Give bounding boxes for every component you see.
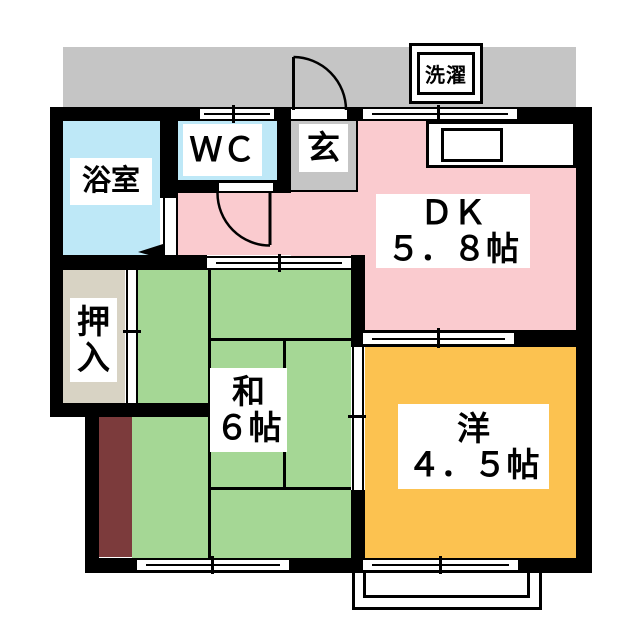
bath-label-text: 浴室 <box>82 166 140 197</box>
label-genkan: 玄 <box>299 124 348 172</box>
label-oshiire: 押 入 <box>70 298 117 382</box>
oshiire-char-2: 入 <box>77 340 110 376</box>
dk-size-text: ５．８帖 <box>387 231 519 267</box>
laundry-box: 洗濯 <box>409 43 483 104</box>
youshitsu-name-text: 洋 <box>457 411 490 447</box>
bath-door-triangle <box>138 244 163 259</box>
label-wc: ＷＣ <box>183 124 262 176</box>
youshitsu-size-text: ４．５帖 <box>408 447 540 483</box>
wc-door-arc <box>218 193 271 246</box>
wc-label-text: ＷＣ <box>190 132 256 168</box>
dk-name-text: ＤＫ <box>420 195 486 231</box>
genkan-label-text: 玄 <box>307 130 340 166</box>
label-washitsu: 和 ６帖 <box>210 368 287 452</box>
washitsu-name-text: 和 <box>232 374 265 410</box>
label-youshitsu: 洋 ４．５帖 <box>398 404 549 489</box>
entrance-door-arc <box>294 57 347 110</box>
washitsu-size-text: ６帖 <box>216 410 282 446</box>
label-dk: ＤＫ ５．８帖 <box>376 194 530 268</box>
label-bath: 浴室 <box>70 158 152 205</box>
floorplan: 洗濯 浴室 ＷＣ 玄 ＤＫ ５．８帖 和 ６帖 洋 ４．５帖 押 入 <box>0 0 640 640</box>
oshiire-char-1: 押 <box>77 304 110 340</box>
laundry-label: 洗濯 <box>417 52 475 95</box>
